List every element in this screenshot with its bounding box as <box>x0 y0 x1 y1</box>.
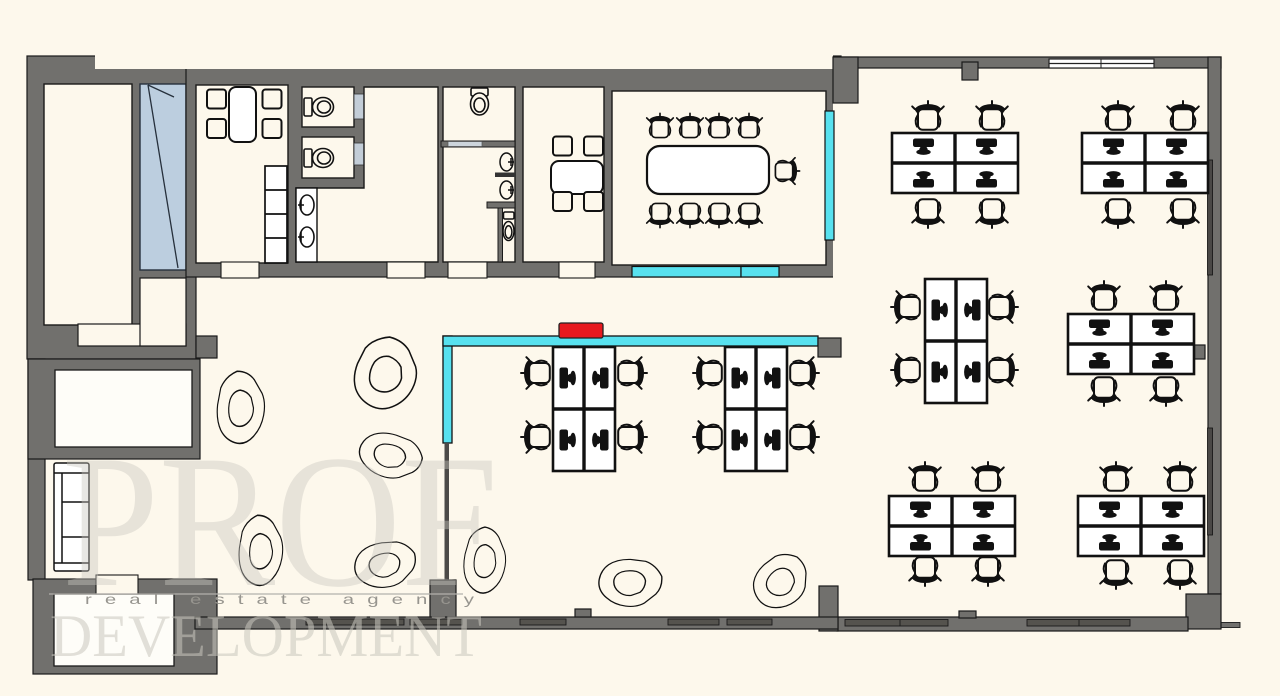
svg-text:DEVELOPMENT: DEVELOPMENT <box>50 603 482 669</box>
